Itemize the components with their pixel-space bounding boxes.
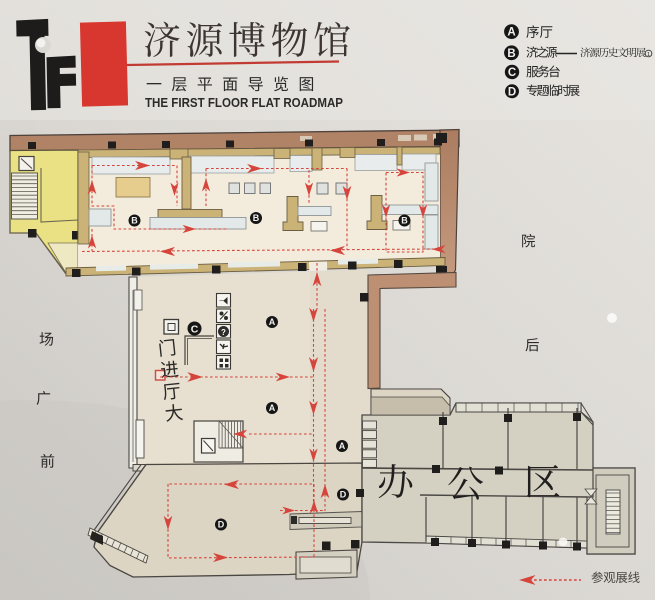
svg-text:1: 1 xyxy=(647,52,650,58)
svg-text:?: ? xyxy=(221,328,226,337)
svg-text:A: A xyxy=(269,403,276,413)
svg-text:B: B xyxy=(507,48,515,60)
svg-text:D: D xyxy=(218,520,225,530)
svg-text:B: B xyxy=(253,213,260,223)
svg-text:B: B xyxy=(401,216,408,226)
svg-text:A: A xyxy=(507,27,515,39)
svg-text:D: D xyxy=(508,86,516,98)
svg-text:B: B xyxy=(131,216,138,226)
svg-text:THE FIRST FLOOR FLAT ROADMAP: THE FIRST FLOOR FLAT ROADMAP xyxy=(145,95,343,110)
svg-text:C: C xyxy=(191,323,199,335)
svg-text:D: D xyxy=(340,490,347,500)
svg-text:A: A xyxy=(269,317,276,327)
svg-text:A: A xyxy=(339,441,346,451)
svg-text:C: C xyxy=(508,67,516,79)
